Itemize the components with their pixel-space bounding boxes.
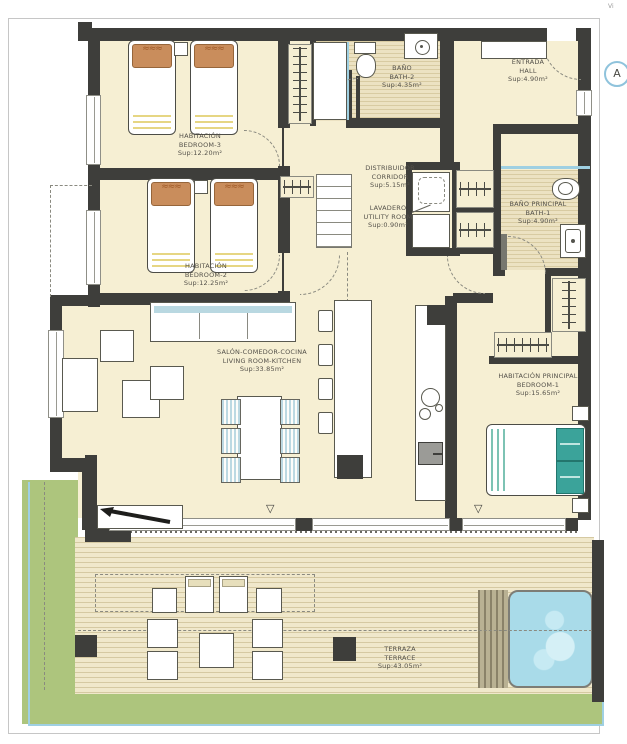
hall-console	[481, 41, 547, 59]
wardrobe	[280, 176, 314, 198]
room-name-es: BAÑO	[340, 64, 464, 73]
terrace-chair	[252, 619, 283, 648]
window	[576, 90, 592, 116]
lounger-pillow	[222, 579, 245, 587]
wardrobe	[552, 278, 586, 332]
bed-single: ≈≈≈	[210, 178, 258, 273]
stool	[318, 378, 333, 400]
headboard-waves: ≈≈≈	[224, 182, 244, 192]
room-area: Sup:4.90m²	[466, 75, 590, 84]
bed-single: ≈≈≈	[128, 40, 176, 135]
bed-headboard: ≈≈≈	[151, 182, 191, 206]
sink-basin	[419, 408, 431, 420]
dining-chair	[221, 428, 241, 454]
sliding-window	[462, 518, 566, 531]
terrace-table	[199, 633, 234, 668]
faucet-dot	[571, 239, 575, 243]
garden-strip-left	[22, 480, 78, 724]
room-area: Sup:4.35m²	[340, 81, 464, 90]
room-name-es: BAÑO PRINCIPAL	[476, 200, 600, 209]
headboard-waves: ≈≈≈	[204, 44, 224, 54]
nightstand	[572, 406, 589, 421]
room-label-terrace: TERRAZA TERRACE Sup:43.05m²	[338, 645, 462, 671]
room-area: Sup:15.65m²	[476, 389, 600, 398]
wall	[566, 518, 578, 531]
room-name-en: BATH-1	[476, 209, 600, 218]
sofa	[150, 302, 296, 342]
corner-note: Vi	[608, 3, 614, 10]
room-label-bedroom2: HABITACIÓN BEDROOM-2 Sup:12.25m²	[144, 262, 268, 288]
side-table	[256, 588, 282, 613]
room-area: Sup:43.05m²	[338, 662, 462, 671]
counter-block	[427, 305, 446, 325]
room-name-en: BEDROOM-3	[138, 141, 262, 150]
room-name-en: CORRIDOR	[328, 173, 452, 182]
room-name-en: BEDROOM-1	[476, 381, 600, 390]
headboard-waves: ≈≈≈	[161, 182, 181, 192]
sun-lounger	[219, 576, 248, 613]
nightstand	[194, 180, 208, 194]
cooktop-handle	[433, 453, 442, 455]
wall	[352, 118, 444, 128]
side-table	[100, 330, 134, 362]
property-line	[50, 185, 51, 297]
wardrobe	[494, 332, 552, 358]
sun-lounger	[185, 576, 214, 613]
dining-chair	[221, 399, 241, 425]
room-name-es: LAVADERO	[326, 204, 450, 213]
sofa-seam	[199, 313, 200, 339]
nightstand	[572, 498, 589, 513]
room-label-bath1: BAÑO PRINCIPAL BATH-1 Sup:4.90m²	[476, 200, 600, 226]
room-name-en: BATH-2	[340, 73, 464, 82]
room-name-es: HABITACIÓN PRINCIPAL	[476, 372, 600, 381]
room-name-en: HALL	[466, 67, 590, 76]
room-label-living: SALÓN-COMEDOR-COCINA LIVING ROOM-KITCHEN…	[200, 348, 324, 374]
bed-headboard: ≈≈≈	[194, 44, 234, 68]
sliding-window	[312, 518, 450, 531]
section-marker-label: A	[613, 67, 621, 80]
faucet-dot	[420, 45, 423, 48]
room-area: Sup:12.25m²	[144, 279, 268, 288]
faucet-dot	[435, 404, 443, 412]
wall	[453, 293, 493, 303]
side-table	[152, 588, 177, 613]
bed-single: ≈≈≈	[147, 178, 195, 273]
sofa-seam	[247, 313, 248, 339]
balustrade-bottom	[28, 724, 604, 726]
room-label-utility: LAVADERO UTILITY ROOM Sup:0.90m²	[326, 204, 450, 230]
terrace-chair	[147, 651, 178, 680]
bed-headboard: ≈≈≈	[214, 182, 254, 206]
wall	[440, 28, 454, 162]
terrace-pillar	[75, 635, 97, 657]
stool	[318, 310, 333, 332]
room-label-hall: ENTRADA HALL Sup:4.90m²	[466, 58, 590, 84]
terrace-chair	[147, 619, 178, 648]
armchair	[62, 358, 98, 412]
pillow	[556, 428, 584, 461]
garden-strip-bottom	[22, 692, 604, 724]
wall	[445, 296, 457, 520]
room-label-bedroom3: HABITACIÓN BEDROOM-3 Sup:12.20m²	[138, 132, 262, 158]
room-name-es: SALÓN-COMEDOR-COCINA	[200, 348, 324, 357]
terrace-guide-line	[44, 482, 45, 690]
slide-arrow-icon	[98, 506, 182, 528]
room-area: Sup:0.90m²	[326, 221, 450, 230]
sofa-back	[154, 306, 292, 313]
island-base	[337, 455, 363, 479]
property-line	[50, 185, 92, 186]
wall	[545, 268, 591, 276]
dining-table	[237, 396, 282, 480]
wall	[50, 295, 100, 306]
pool	[508, 590, 593, 688]
room-name-en: BEDROOM-2	[144, 271, 268, 280]
room-area: Sup:4.90m²	[476, 217, 600, 226]
room-name-es: HABITACIÓN	[144, 262, 268, 271]
section-marker-a: A	[604, 61, 627, 87]
opening-marker: ▽	[474, 503, 482, 514]
wall	[576, 28, 591, 41]
room-name-es: DISTRIBUIDOR	[328, 164, 452, 173]
room-area: Sup:12.20m²	[138, 149, 262, 158]
room-name-en: TERRACE	[338, 654, 462, 663]
toilet-tank	[354, 42, 376, 54]
stool	[318, 412, 333, 434]
wall	[406, 248, 460, 256]
bed-foot-stripes	[133, 115, 171, 130]
coffee-table	[150, 366, 184, 400]
floorplan-canvas: Vi A	[0, 0, 627, 744]
dining-chair	[280, 399, 300, 425]
room-name-en: LIVING ROOM-KITCHEN	[200, 357, 324, 366]
room-label-corridor: DISTRIBUIDOR CORRIDOR Sup:5.15m²	[328, 164, 452, 190]
room-name-es: HABITACIÓN	[138, 132, 262, 141]
door-leaf	[501, 234, 507, 270]
room-area: Sup:5.15m²	[328, 181, 452, 190]
room-name-en: UTILITY ROOM	[326, 213, 450, 222]
pillow	[556, 461, 584, 494]
bed-single: ≈≈≈	[190, 40, 238, 135]
room-label-bedroom1: HABITACIÓN PRINCIPAL BEDROOM-1 Sup:15.65…	[476, 372, 600, 398]
nightstand	[174, 42, 188, 56]
toilet-bowl	[558, 182, 573, 195]
room-label-bath2: BAÑO BATH-2 Sup:4.35m²	[340, 64, 464, 90]
window	[86, 95, 101, 165]
bed-headboard: ≈≈≈	[132, 44, 172, 68]
wall	[296, 518, 312, 531]
guide-line	[347, 252, 348, 302]
balustrade-left	[28, 482, 30, 724]
bath1-glass	[501, 166, 590, 169]
wall	[493, 124, 591, 134]
wardrobe	[288, 44, 312, 124]
pool-deck-stripes	[478, 590, 508, 688]
room-name-es: ENTRADA	[466, 58, 590, 67]
window	[86, 210, 101, 285]
room-area: Sup:33.85m²	[200, 365, 324, 374]
wall	[88, 28, 100, 95]
dining-chair	[280, 457, 300, 483]
room-name-es: TERRAZA	[338, 645, 462, 654]
dining-chair	[221, 457, 241, 483]
cooktop	[418, 442, 443, 465]
terrace-chair	[252, 651, 283, 680]
door-leaf	[282, 253, 284, 291]
bed-foot-stripes	[491, 429, 509, 491]
dining-chair	[280, 428, 300, 454]
kitchen-island	[334, 300, 372, 478]
door-leaf	[282, 128, 284, 166]
sliding-door-panel	[97, 505, 183, 529]
wall	[450, 518, 462, 531]
lounger-pillow	[188, 579, 211, 587]
wall	[592, 540, 604, 702]
bed-foot-stripes	[195, 115, 233, 130]
opening-marker: ▽	[266, 503, 274, 514]
headboard-waves: ≈≈≈	[142, 44, 162, 54]
